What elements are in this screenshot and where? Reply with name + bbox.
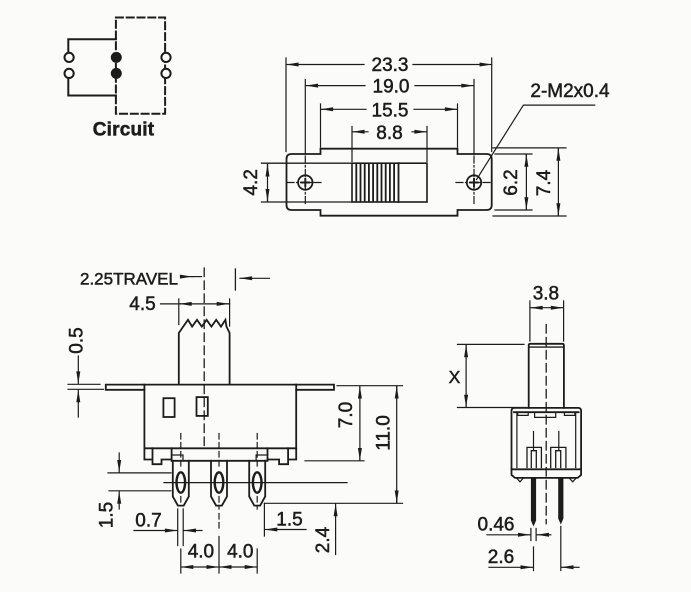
svg-text:11.0: 11.0	[374, 415, 395, 451]
svg-text:0.5: 0.5	[67, 327, 88, 353]
svg-text:0.46: 0.46	[478, 515, 515, 536]
svg-text:4.2: 4.2	[241, 169, 262, 195]
svg-text:1.5: 1.5	[97, 502, 118, 528]
svg-text:4.0: 4.0	[188, 542, 214, 563]
svg-text:4.5: 4.5	[129, 294, 155, 315]
svg-text:6.2: 6.2	[501, 169, 522, 195]
svg-text:1.5: 1.5	[276, 510, 302, 531]
svg-text:Circuit: Circuit	[93, 120, 155, 141]
svg-text:7.0: 7.0	[336, 402, 357, 428]
svg-text:2.6: 2.6	[488, 547, 514, 568]
svg-text:23.3: 23.3	[372, 55, 409, 76]
svg-text:19.0: 19.0	[373, 77, 410, 98]
svg-text:7.4: 7.4	[534, 169, 555, 196]
svg-text:3.8: 3.8	[533, 284, 559, 305]
svg-text:2.4: 2.4	[313, 526, 334, 553]
svg-text:15.5: 15.5	[372, 100, 409, 121]
svg-text:2-M2x0.4: 2-M2x0.4	[530, 81, 610, 102]
svg-text:2.25TRAVEL: 2.25TRAVEL	[80, 270, 178, 289]
svg-text:4.0: 4.0	[227, 542, 253, 563]
svg-text:0.7: 0.7	[135, 510, 161, 531]
svg-text:X: X	[449, 367, 461, 387]
svg-text:8.8: 8.8	[376, 123, 402, 144]
